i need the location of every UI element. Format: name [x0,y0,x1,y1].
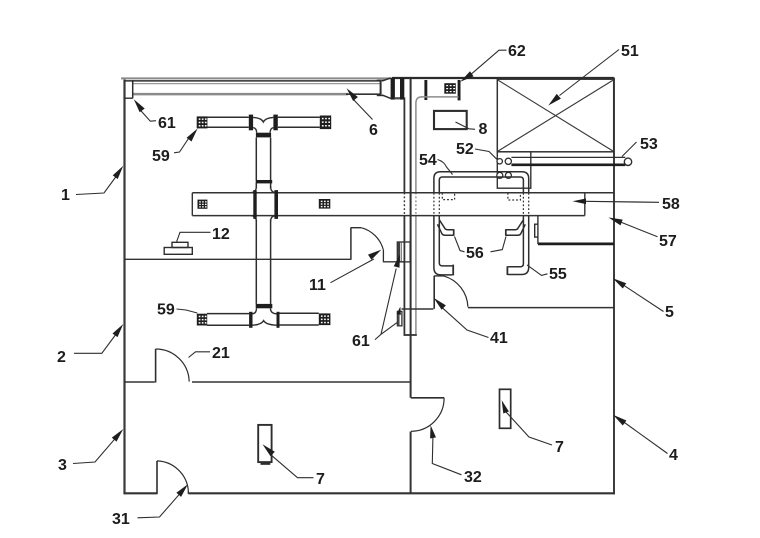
svg-text:6: 6 [369,122,378,139]
svg-text:1: 1 [61,187,70,204]
svg-text:59: 59 [152,148,170,165]
svg-text:7: 7 [555,439,564,456]
svg-text:31: 31 [112,511,130,528]
svg-text:61: 61 [352,333,370,350]
svg-text:52: 52 [456,141,474,158]
svg-text:11: 11 [309,277,326,294]
svg-text:57: 57 [659,233,677,250]
svg-text:51: 51 [621,43,639,60]
svg-text:55: 55 [549,266,567,283]
svg-text:53: 53 [640,136,658,153]
svg-text:54: 54 [419,152,437,169]
svg-text:4: 4 [669,447,678,464]
svg-text:21: 21 [212,345,230,362]
svg-text:56: 56 [466,245,484,262]
svg-text:62: 62 [508,43,526,60]
svg-text:7: 7 [316,471,325,488]
svg-text:59: 59 [157,302,175,319]
svg-text:32: 32 [464,469,482,486]
svg-text:41: 41 [490,330,508,347]
svg-text:2: 2 [57,349,66,366]
svg-text:5: 5 [665,304,674,321]
svg-text:12: 12 [212,226,230,243]
svg-text:58: 58 [662,196,680,213]
svg-text:3: 3 [58,457,67,474]
svg-text:8: 8 [479,121,488,138]
svg-text:61: 61 [158,115,176,132]
